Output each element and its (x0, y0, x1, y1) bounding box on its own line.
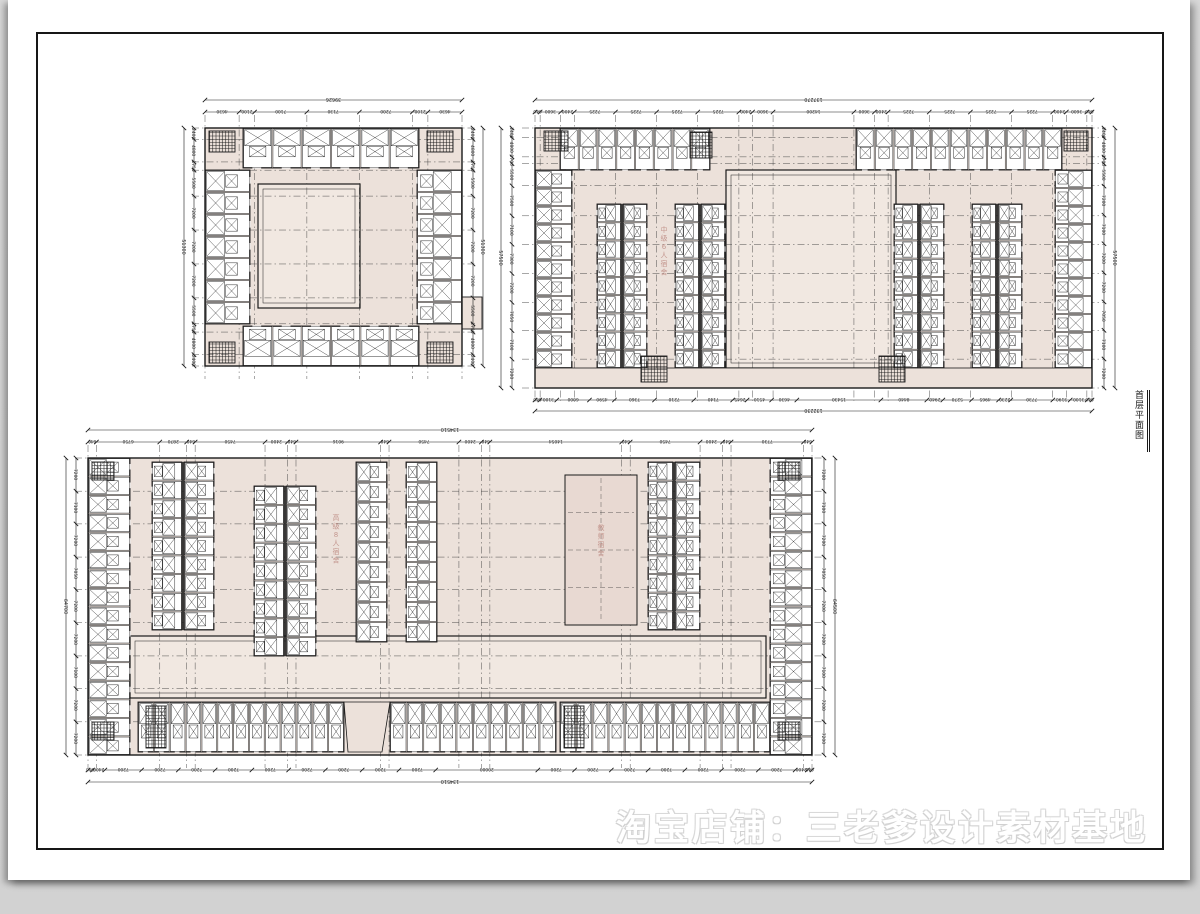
sheet-border (36, 32, 1164, 850)
watermark-text: 淘宝店铺：三老爹设计素材基地 (616, 800, 1148, 851)
viewer-background: 4630210071007130720021004630396262400480… (0, 0, 1200, 914)
sheet-title-vertical: 首层平面图 (1132, 390, 1150, 452)
